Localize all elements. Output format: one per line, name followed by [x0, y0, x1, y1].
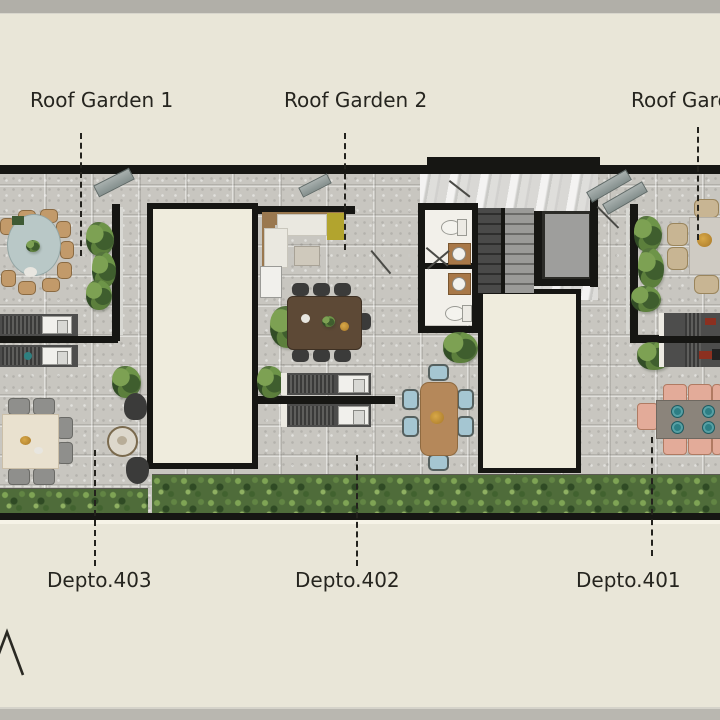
wall-401-horizontal [630, 335, 720, 343]
counter-sink-module [42, 347, 72, 365]
plant [634, 216, 662, 252]
table-item [117, 436, 127, 445]
roof-garden-1-label: Roof Garden 1 [30, 89, 173, 111]
chair [313, 349, 330, 362]
burner [24, 352, 32, 360]
stair-flight-up [504, 208, 534, 293]
facade-wall-top [0, 165, 720, 174]
table-decor [340, 322, 349, 331]
chair [334, 283, 351, 296]
counter-sink-module [42, 316, 72, 334]
planter-hedge-left [0, 488, 148, 515]
roof-garden-3-label: Roof Garden 3 [631, 89, 720, 111]
leader-roof-garden-1 [80, 133, 82, 256]
glass-line-403 [120, 207, 123, 335]
place-setting [702, 421, 715, 434]
chair [428, 364, 449, 381]
elevator-cab [542, 211, 592, 280]
leader-roof-garden-2 [344, 133, 346, 250]
table-decor [34, 447, 43, 454]
facade-wall-bottom [0, 513, 720, 520]
bath-wall-bottom [418, 326, 478, 333]
table-decor [697, 233, 712, 247]
planter-hedge-main [152, 474, 720, 515]
chair [1, 270, 16, 287]
chair [292, 349, 309, 362]
skylight-room-left [147, 203, 258, 469]
grill [685, 313, 701, 336]
floorplan-screenshot: Roof Garden 1 Roof Garden 2 Roof Garden … [0, 0, 720, 720]
coffee-table [294, 246, 320, 266]
glass-line-401 [626, 208, 629, 334]
mountain-peak-logo-icon [0, 626, 34, 678]
chair [457, 389, 474, 410]
chair [57, 262, 72, 279]
toilet-tank [462, 305, 472, 322]
place-setting [671, 421, 684, 434]
chair [33, 398, 55, 415]
grill [288, 406, 334, 425]
chair [694, 275, 719, 294]
core-wall-right [590, 197, 598, 287]
core-wall-left [534, 211, 542, 286]
chair [8, 468, 30, 485]
chair [18, 281, 36, 295]
leader-depto-403 [94, 450, 96, 566]
roof-garden-2-label: Roof Garden 2 [284, 89, 427, 111]
chair [667, 223, 688, 246]
chair [667, 247, 688, 270]
chair [33, 468, 55, 485]
sink-basin [57, 351, 68, 365]
chair [428, 454, 449, 471]
sofa-throw [327, 213, 344, 240]
top-window-strip [0, 0, 720, 14]
chair [8, 398, 30, 415]
table-decor [20, 436, 31, 445]
plant [86, 280, 112, 310]
counter-item [705, 318, 716, 325]
plant [443, 332, 478, 363]
depto-403-label: Depto.403 [47, 569, 152, 591]
leader-depto-402 [356, 455, 358, 566]
counter-sink-module [338, 375, 369, 393]
chair [334, 349, 351, 362]
counter-end [281, 404, 287, 427]
lounge-chair [126, 457, 149, 484]
sofa-cushions [264, 228, 288, 268]
bottom-window-strip [0, 707, 720, 720]
chair [402, 389, 419, 410]
plant [638, 248, 664, 288]
chair [313, 283, 330, 296]
sink-basin [353, 410, 365, 425]
chair [57, 442, 73, 464]
chair [292, 283, 309, 296]
counter-sink-module [338, 406, 369, 425]
plant [631, 286, 661, 312]
counter-end [659, 343, 664, 367]
plant [257, 366, 284, 398]
grill [2, 347, 40, 365]
counter-end [281, 373, 287, 395]
toilet-tank [457, 219, 467, 236]
chair [57, 417, 73, 439]
table-centerpiece [430, 411, 444, 424]
wall-402-bbq [258, 396, 395, 404]
wall-403-horizontal [0, 336, 118, 343]
depto-401-label: Depto.401 [576, 569, 681, 591]
sink-basin [353, 379, 365, 393]
chair [42, 278, 60, 292]
stair-railing [501, 208, 505, 293]
chair [637, 403, 658, 430]
depto-402-label: Depto.402 [295, 569, 400, 591]
chair [60, 241, 74, 259]
table-centerpiece [322, 316, 335, 327]
lounge-chair [124, 393, 147, 420]
grill [2, 316, 40, 334]
bath-wall-top [418, 203, 478, 210]
grill [288, 375, 334, 393]
serving-tray [12, 216, 24, 225]
counter-item [712, 349, 720, 360]
leader-depto-401 [651, 437, 653, 556]
place-setting [702, 405, 715, 418]
counter-end [659, 313, 664, 336]
chair [402, 416, 419, 437]
facade-wall-top-core-step [427, 157, 600, 166]
planter-box [260, 266, 282, 298]
sink [452, 277, 466, 291]
table-centerpiece [26, 240, 40, 252]
parapet-edge [0, 520, 720, 524]
table-item [24, 267, 37, 277]
stair-flight-down [477, 208, 504, 293]
sink-basin [57, 320, 68, 334]
bath-wall-inner [472, 203, 478, 333]
table-decor [301, 314, 310, 323]
place-setting [671, 405, 684, 418]
core-wall-bottom [534, 279, 598, 286]
chair [457, 416, 474, 437]
sink [452, 247, 466, 261]
leader-roof-garden-3 [697, 127, 699, 240]
plant [86, 222, 114, 256]
skylight-room-center [478, 289, 581, 473]
